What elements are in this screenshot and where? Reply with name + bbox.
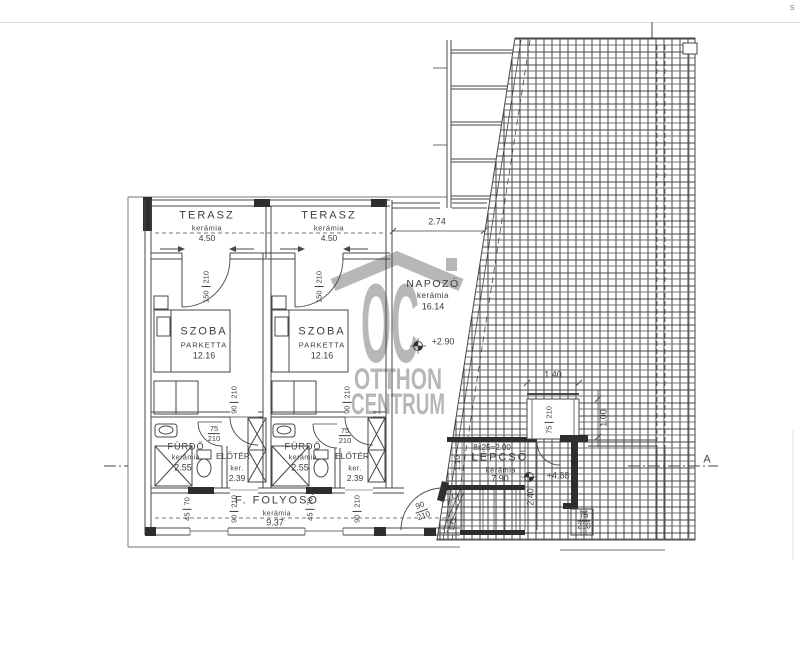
plan-linework <box>0 0 800 663</box>
room-label-furdo-1: FÜRDŐ <box>168 443 205 452</box>
room-label-szoba-1: SZOBA <box>180 327 227 338</box>
room-material-terasz-2: kerámia <box>314 224 344 232</box>
door-tag-furdo-2: 75210 <box>339 426 352 446</box>
room-area-eloter-1: 2.39 <box>229 474 246 483</box>
room-material-napozo: kerámia <box>417 292 449 300</box>
room-area-lepcso: 7.90 <box>491 475 509 484</box>
room-area-napozo: 16.14 <box>422 303 445 312</box>
room-label-terasz-2: TERASZ <box>301 211 356 222</box>
level-napozo: +2.90 <box>432 338 455 347</box>
level-lepcso: +4.68 <box>547 472 570 481</box>
room-label-eloter-2: ELŐTÉR <box>335 452 369 461</box>
dim-box-height: 1.00 <box>600 409 609 427</box>
door-tag-szoba-1: 90210 <box>230 386 239 414</box>
room-material-szoba-1: PARKETTA <box>181 341 227 349</box>
door-tag-terasz-2: 150210 <box>315 271 324 303</box>
room-area-folyoso: 9.37 <box>266 519 284 528</box>
dim-stair-depth: 2.40 <box>527 488 536 506</box>
room-area-szoba-2: 12.16 <box>311 352 334 361</box>
terrace-walls <box>143 197 390 535</box>
section-marker-a: A <box>703 455 710 466</box>
door-tag-right: 75210 <box>577 511 590 532</box>
dim-napozo-width: 2.74 <box>428 218 446 227</box>
door-tag-szoba-2: 90210 <box>343 386 352 414</box>
window-tag-corridor-1: 4570 <box>183 497 192 521</box>
stair-formula: 8x25=2.00 <box>473 444 511 452</box>
room-area-furdo-2: 2.55 <box>291 464 309 473</box>
dim-stair-width: 1.10 <box>454 455 462 471</box>
room-label-furdo-2: FÜRDŐ <box>285 443 322 452</box>
room-area-szoba-1: 12.16 <box>193 352 216 361</box>
room-material-furdo-1: kerámia <box>172 455 200 462</box>
room-area-eloter-2: 2.39 <box>347 474 364 483</box>
room-area-furdo-1: 2.55 <box>174 464 192 473</box>
room-area-terasz-1: 4.50 <box>199 234 216 243</box>
room-label-terasz-1: TERASZ <box>179 211 234 222</box>
room-label-napozo: NAPOZÓ <box>406 279 459 290</box>
tag-roof-opening: 75210 <box>545 406 554 434</box>
door-tag-corridor-1: 90210 <box>230 495 239 523</box>
dim-box-width: 1.40 <box>544 371 562 380</box>
room-label-lepcso: LÉPCSŐ <box>472 453 529 464</box>
room-material-folyoso: kerámia <box>263 511 291 518</box>
room-area-terasz-2: 4.50 <box>321 234 338 243</box>
room-material-eloter-2: ker. <box>348 466 361 473</box>
room-label-szoba-2: SZOBA <box>298 327 345 338</box>
room-label-eloter-1: ELŐTÉR <box>216 452 250 461</box>
room-material-szoba-2: PARKETTA <box>299 341 345 349</box>
room-material-eloter-1: ker. <box>230 466 243 473</box>
room-material-terasz-1: kerámia <box>192 224 222 232</box>
door-tag-corridor-2: 90210 <box>353 495 362 523</box>
door-tag-terasz-1: 150210 <box>202 271 211 303</box>
floorplan-page: s OC OTTHON CENTRUM <box>0 0 800 663</box>
door-tag-furdo-1: 75210 <box>208 424 221 444</box>
window-tag-corridor-2: 4570 <box>306 497 315 521</box>
room-material-furdo-2: kerámia <box>289 455 317 462</box>
